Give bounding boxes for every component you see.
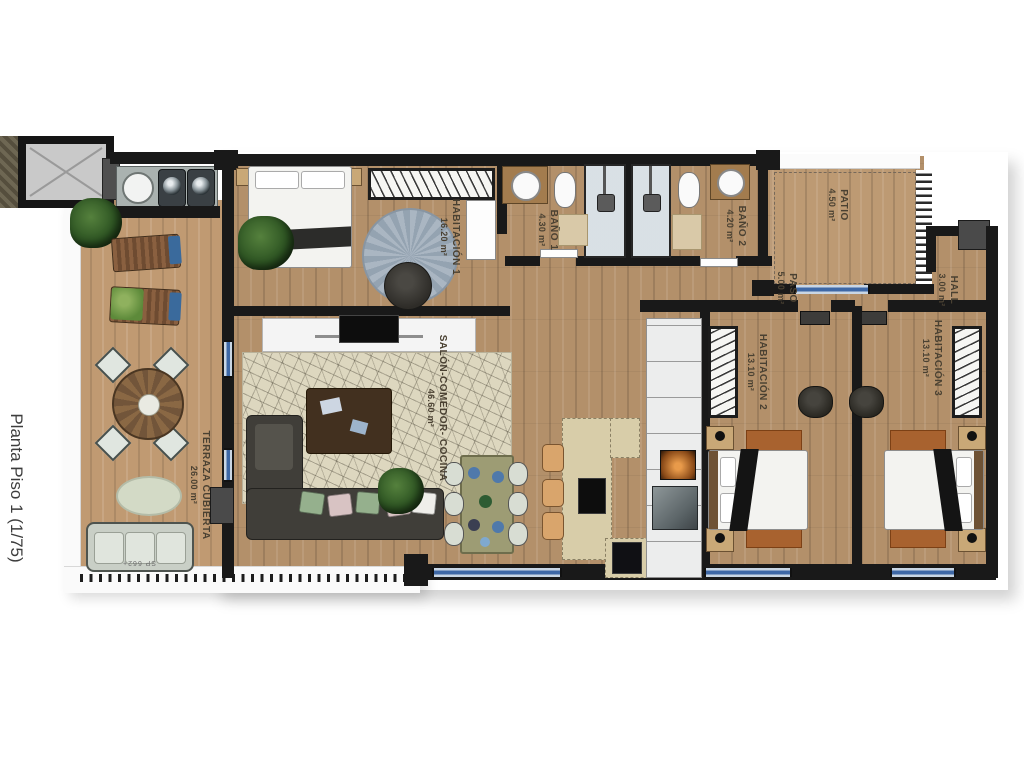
fridge-icon	[652, 486, 698, 530]
dryer-drum-icon	[192, 177, 210, 195]
room-label-terraza: TERRAZA CUBIERTA 26.00 m²	[186, 415, 214, 555]
chaise-cushion	[255, 424, 293, 470]
hab3-headboard	[974, 451, 983, 529]
shower-2	[631, 164, 671, 258]
plate-5	[480, 537, 490, 547]
bath-mat-2	[672, 214, 702, 250]
hab3-chair	[849, 386, 884, 418]
pillow-green-1	[299, 490, 326, 515]
plate-2	[492, 471, 504, 483]
room-label-bano1: BAÑO 1 4.30 m²	[534, 160, 562, 300]
coffee-table-tray	[350, 419, 369, 435]
room-label-bano2: BAÑO 2 4.20 m²	[722, 156, 750, 296]
salon-window	[432, 568, 562, 577]
coffee-table	[306, 388, 392, 454]
hab1-pillow-2	[301, 171, 345, 189]
patio-window	[794, 285, 870, 294]
sun-lounger-1	[111, 234, 181, 273]
kitchen-sink-icon	[612, 542, 642, 574]
kitchen-island-ext	[610, 418, 640, 458]
oven-icon	[660, 450, 696, 480]
hab2-bed	[708, 450, 808, 530]
shower2-stem	[649, 166, 652, 196]
wall-hab2-hab3	[852, 306, 862, 578]
hab3-bed	[884, 450, 984, 530]
pillow-pink-1	[327, 493, 354, 518]
sun-lounger-2	[109, 286, 181, 326]
wall-bano2-patio	[758, 154, 768, 266]
lounger2-towel	[110, 287, 144, 321]
wall-right	[986, 226, 998, 578]
cooktop-icon	[578, 478, 606, 514]
room-label-salon: SALÓN-COMEDOR- COCINA 46.60 m²	[423, 323, 451, 493]
hab3-window	[890, 568, 956, 577]
dining-chair-6	[508, 522, 528, 546]
lounger1-pillow	[168, 236, 182, 265]
dining-chair-3	[444, 522, 464, 546]
shower2-head-icon	[643, 194, 661, 212]
bowl-green	[479, 495, 492, 508]
lounger2-pillow	[168, 292, 181, 321]
lamp-icon	[715, 533, 725, 543]
bar-stool-2	[542, 479, 564, 507]
terrace-oval-rug	[116, 476, 182, 516]
lamp-icon	[967, 533, 977, 543]
utility-wall-bottom	[110, 206, 220, 218]
elevator-x-icon	[26, 144, 106, 200]
hab3-pillow-1	[956, 457, 972, 487]
hab2-pillow-1	[720, 457, 736, 487]
shower-1	[584, 164, 626, 258]
tv-icon	[339, 315, 399, 343]
terrace-table	[112, 368, 184, 440]
wall-left-upper	[222, 154, 234, 316]
wall-top	[214, 154, 774, 166]
terrace-left-band	[64, 200, 81, 590]
bath-mat-1	[558, 214, 588, 246]
plate-4	[492, 521, 504, 533]
room-label-habitacion3: HABITACIÓN 3 13.10 m²	[918, 288, 946, 428]
salon-west-window-1	[224, 340, 232, 378]
plan-title: Planta Piso 1 (1/75)	[2, 388, 26, 588]
dining-table	[460, 455, 514, 554]
hab2-chair	[798, 386, 833, 418]
level-mark: SP 662+	[104, 556, 174, 566]
hab2-window	[704, 568, 792, 577]
lamp-icon	[715, 431, 725, 441]
plate-3	[468, 519, 480, 531]
wall-pillar-paso	[752, 280, 774, 296]
room-label-paso: PASO 5.00 m²	[773, 218, 801, 358]
plate-1	[468, 467, 480, 479]
dining-chair-4	[508, 462, 528, 486]
laundry-sink	[122, 172, 154, 204]
bar-stool-3	[542, 512, 564, 540]
bano2-toilet	[678, 172, 700, 208]
coffee-table-book	[320, 397, 342, 415]
lamp-icon	[967, 431, 977, 441]
hab1-door-leaf	[466, 200, 496, 260]
hab2-nightstand-1	[706, 426, 734, 450]
bar-stool-1	[542, 444, 564, 472]
dryer	[187, 169, 215, 207]
salon-west-window-2	[224, 448, 232, 482]
washer-drum-icon	[163, 177, 181, 195]
room-label-habitacion2: HABITACIÓN 2 13.10 m²	[743, 302, 771, 442]
hab2-wardrobe	[708, 326, 738, 418]
hab1-pillow-1	[255, 171, 299, 189]
shower1-head-icon	[597, 194, 615, 212]
hab3-nightstand-2	[958, 528, 986, 552]
hab2-door	[800, 311, 830, 325]
terrace-railing	[80, 574, 404, 582]
kitchen-tall-units	[646, 318, 702, 578]
room-label-patio: PATIO 4.50 m²	[824, 135, 852, 275]
shower1-stem	[603, 166, 606, 196]
hab1-wardrobe	[368, 168, 495, 200]
hab3-nightstand-1	[958, 426, 986, 450]
dining-chair-5	[508, 492, 528, 516]
hab2-nightstand-2	[706, 528, 734, 552]
floor-plan-page: Planta Piso 1 (1/75)	[0, 0, 1024, 768]
room-label-habitacion1: HABITACIÓN 1 16.20 m²	[436, 167, 464, 307]
hab1-papasan-chair	[384, 262, 432, 310]
terrace-table-center	[138, 394, 160, 416]
washer	[158, 169, 186, 207]
dining-chair-2	[444, 492, 464, 516]
stone-wall	[0, 136, 20, 208]
utility-wall-top	[110, 152, 218, 164]
hab2-headboard	[709, 451, 718, 529]
